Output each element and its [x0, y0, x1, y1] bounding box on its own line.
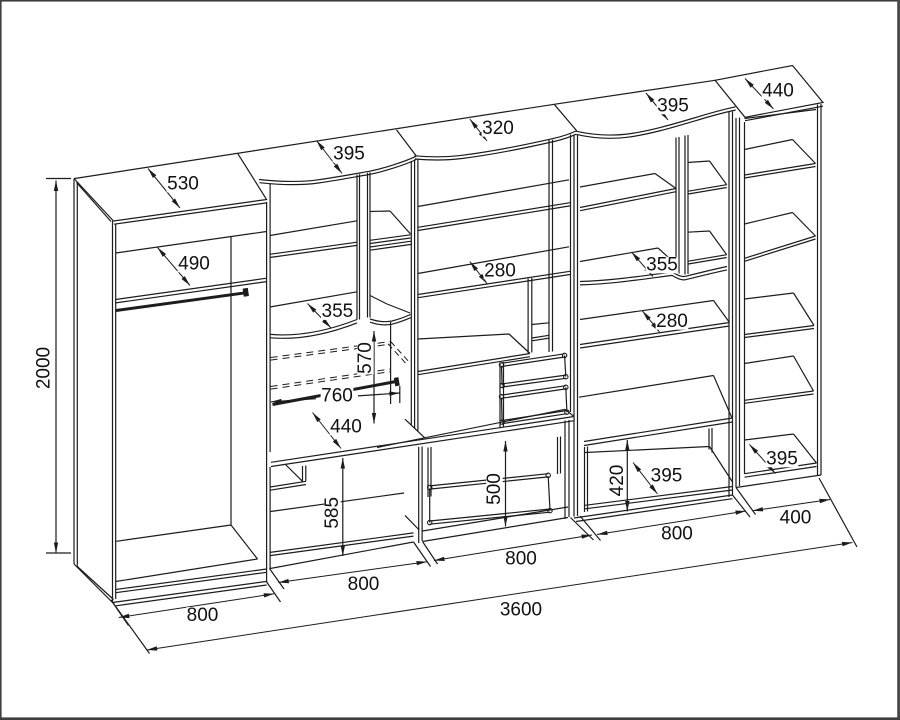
svg-text:585: 585 [322, 497, 343, 529]
svg-text:2000: 2000 [34, 347, 55, 389]
svg-text:530: 530 [167, 174, 199, 195]
svg-text:395: 395 [651, 466, 683, 487]
svg-text:395: 395 [333, 144, 365, 165]
svg-text:440: 440 [330, 417, 362, 438]
svg-text:800: 800 [505, 549, 537, 570]
svg-text:395: 395 [657, 96, 689, 117]
svg-text:280: 280 [656, 311, 688, 332]
svg-text:395: 395 [766, 449, 798, 470]
svg-text:355: 355 [646, 255, 678, 276]
svg-text:440: 440 [762, 81, 794, 102]
svg-text:400: 400 [780, 508, 812, 529]
svg-text:3600: 3600 [500, 600, 542, 621]
svg-text:570: 570 [355, 342, 376, 374]
svg-text:280: 280 [484, 261, 516, 282]
svg-text:800: 800 [187, 605, 219, 626]
svg-text:500: 500 [484, 473, 505, 505]
svg-text:490: 490 [178, 254, 210, 275]
svg-text:355: 355 [322, 301, 354, 322]
svg-text:320: 320 [482, 118, 514, 139]
svg-text:760: 760 [321, 386, 353, 407]
svg-text:800: 800 [661, 524, 693, 545]
svg-text:800: 800 [348, 574, 380, 595]
svg-text:420: 420 [607, 465, 628, 497]
